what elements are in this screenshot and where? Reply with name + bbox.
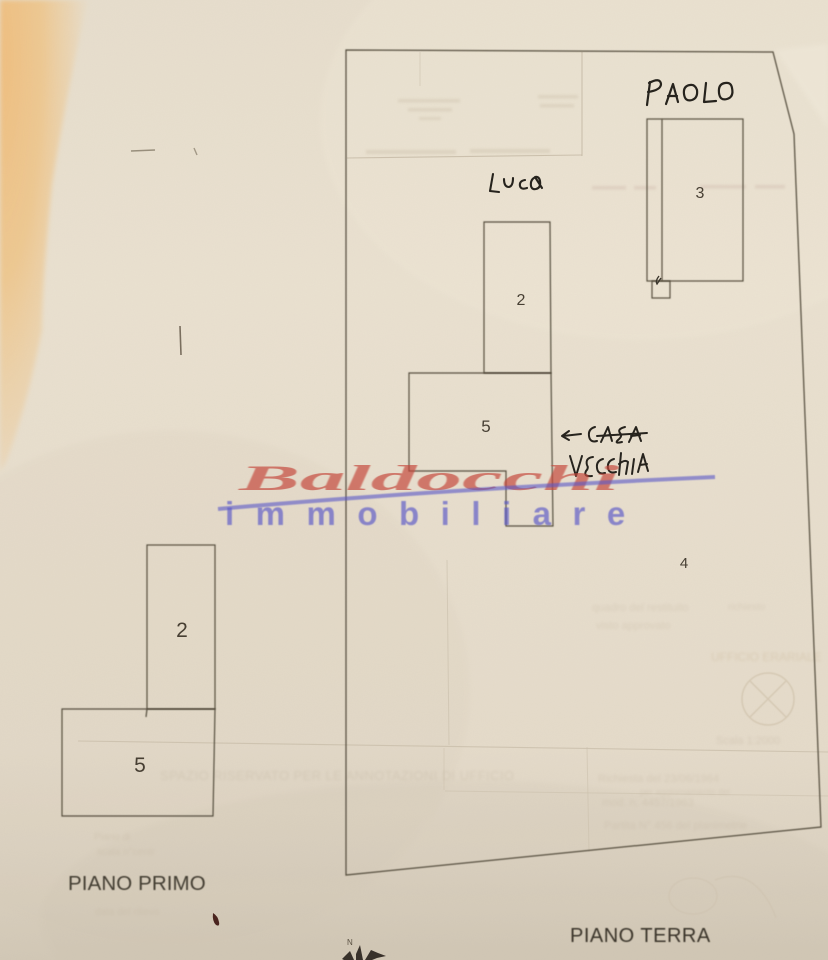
- svg-text:4: 4: [680, 555, 688, 572]
- svg-text:per aggiornamento del: per aggiornamento del: [640, 787, 730, 797]
- svg-text:Scala 1:2000: Scala 1:2000: [716, 735, 780, 747]
- svg-text:scala n°centr: scala n°centr: [97, 847, 156, 858]
- svg-text:2: 2: [517, 292, 526, 309]
- svg-text:N: N: [347, 938, 353, 947]
- svg-text:mod. n. 4457/1963: mod. n. 4457/1963: [602, 797, 694, 809]
- svg-text:quadro del restituito: quadro del restituito: [592, 602, 689, 614]
- svg-text:5: 5: [134, 754, 146, 777]
- svg-text:PIANO PRIMO: PIANO PRIMO: [68, 872, 206, 895]
- svg-text:immobiliare: immobiliare: [225, 495, 647, 532]
- svg-text:data del rilievo: data del rilievo: [95, 907, 160, 918]
- svg-text:Piano di: Piano di: [94, 832, 130, 843]
- svg-text:UFFICIO ERARIALE: UFFICIO ERARIALE: [711, 650, 822, 664]
- svg-text:Richiesta del 23/06/1964: Richiesta del 23/06/1964: [598, 773, 719, 785]
- svg-text:PIANO TERRA: PIANO TERRA: [570, 925, 711, 947]
- svg-text:2: 2: [176, 619, 188, 642]
- svg-text:Partita N° 456 del planime: Partita N° 456 del planimetrie: [604, 820, 747, 832]
- svg-text:richiesto: richiesto: [728, 602, 766, 613]
- svg-text:visto approvato: visto approvato: [596, 620, 671, 632]
- svg-text:3: 3: [696, 185, 705, 202]
- svg-text:5: 5: [481, 417, 490, 436]
